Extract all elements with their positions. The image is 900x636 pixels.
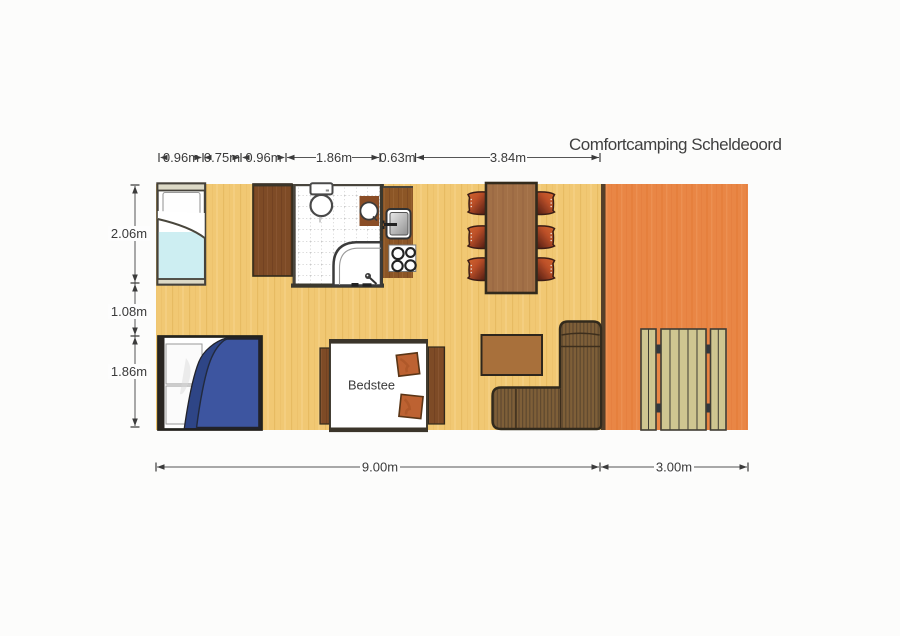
- svg-text:0.75m: 0.75m: [204, 150, 240, 165]
- svg-text:Bedstee: Bedstee: [348, 378, 395, 393]
- svg-text:0.96m: 0.96m: [163, 150, 199, 165]
- svg-text:0.96m: 0.96m: [245, 150, 281, 165]
- svg-text:3.00m: 3.00m: [656, 460, 692, 475]
- svg-text:1.86m: 1.86m: [316, 150, 352, 165]
- svg-text:9.00m: 9.00m: [362, 460, 398, 475]
- svg-text:1.86m: 1.86m: [111, 364, 147, 379]
- svg-text:3.84m: 3.84m: [490, 150, 526, 165]
- svg-text:2.06m: 2.06m: [111, 226, 147, 241]
- svg-text:Comfortcamping Scheldeoord: Comfortcamping Scheldeoord: [569, 135, 782, 154]
- svg-text:1.08m: 1.08m: [111, 304, 147, 319]
- svg-text:0.63m: 0.63m: [379, 150, 415, 165]
